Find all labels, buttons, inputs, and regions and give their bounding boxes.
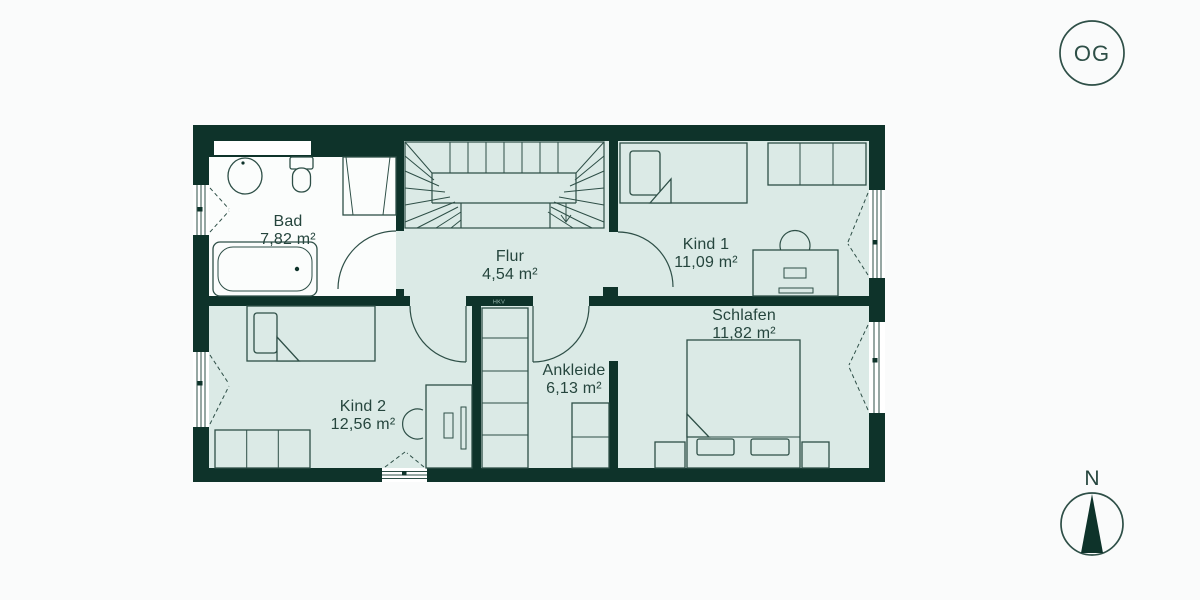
nightstand-left	[655, 442, 685, 468]
floor-plan: Bad 7,82 m² Flur 4,54 m² Kind 1 11,09 m²…	[193, 125, 885, 482]
hkv-label: HKV	[493, 300, 505, 306]
room-label-schlafen: Schlafen 11,82 m²	[712, 307, 776, 342]
shower	[343, 157, 396, 215]
tall-wardrobe-ankleide	[482, 308, 528, 468]
floor-badge: OG	[1060, 21, 1124, 85]
floorplan-canvas: Bad 7,82 m² Flur 4,54 m² Kind 1 11,09 m²…	[0, 0, 1200, 600]
toilet	[290, 157, 313, 192]
room-name: Kind 2	[340, 398, 387, 415]
floorplan-page: Bad 7,82 m² Flur 4,54 m² Kind 1 11,09 m²…	[0, 0, 1200, 600]
room-area: 7,82 m²	[260, 231, 316, 248]
north-label: N	[1084, 467, 1099, 490]
double-bed-schlafen	[687, 340, 800, 468]
bed-kind1	[620, 143, 747, 203]
cabinet-ankleide	[572, 403, 609, 468]
nightstand-right	[802, 442, 829, 468]
compass: N	[1061, 467, 1123, 555]
sink	[228, 158, 262, 194]
room-name: Kind 1	[683, 236, 730, 253]
room-name: Bad	[273, 213, 302, 230]
room-area: 11,82 m²	[712, 325, 776, 342]
bed-kind2	[247, 306, 375, 361]
room-label-kind2: Kind 2 12,56 m²	[331, 398, 396, 433]
room-area: 11,09 m²	[674, 254, 738, 271]
room-name: Schlafen	[712, 307, 776, 324]
room-area: 6,13 m²	[546, 380, 602, 397]
bathtub	[213, 242, 317, 296]
floor-badge-label: OG	[1074, 41, 1110, 66]
room-label-kind1: Kind 1 11,09 m²	[674, 236, 738, 271]
north-needle-icon	[1081, 494, 1103, 553]
wardrobe-kind2	[215, 430, 310, 468]
room-name: Flur	[496, 248, 525, 265]
room-label-ankleide: Ankleide 6,13 m²	[543, 362, 606, 397]
room-name: Ankleide	[543, 362, 606, 379]
room-area: 4,54 m²	[482, 266, 538, 283]
room-area: 12,56 m²	[331, 416, 396, 433]
wardrobe-kind1	[768, 143, 866, 185]
vanity-counter	[214, 141, 311, 155]
